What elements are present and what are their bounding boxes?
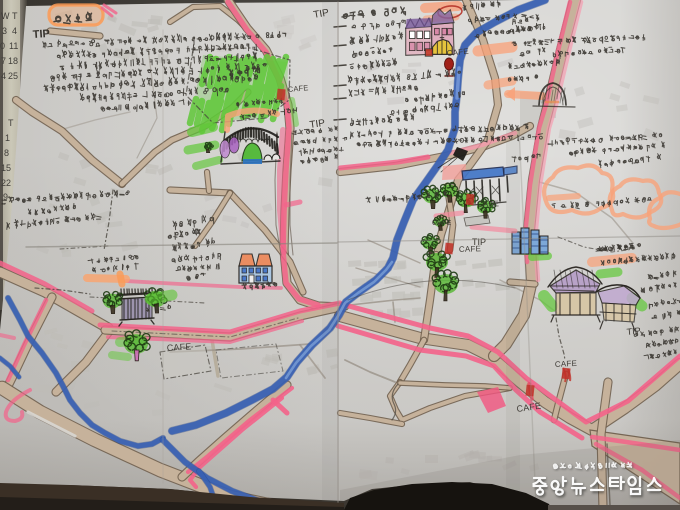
svg-text:CAFE: CAFE [432,220,452,227]
svg-text:CAFE: CAFE [477,199,499,209]
svg-text:TIP: TIP [32,28,50,41]
svg-text:CAFE: CAFE [555,359,578,369]
svg-text:CAFE: CAFE [287,83,309,94]
svg-text:CAFE: CAFE [166,341,191,353]
svg-text:TIP: TIP [626,326,641,337]
svg-text:CAFE: CAFE [459,244,481,254]
